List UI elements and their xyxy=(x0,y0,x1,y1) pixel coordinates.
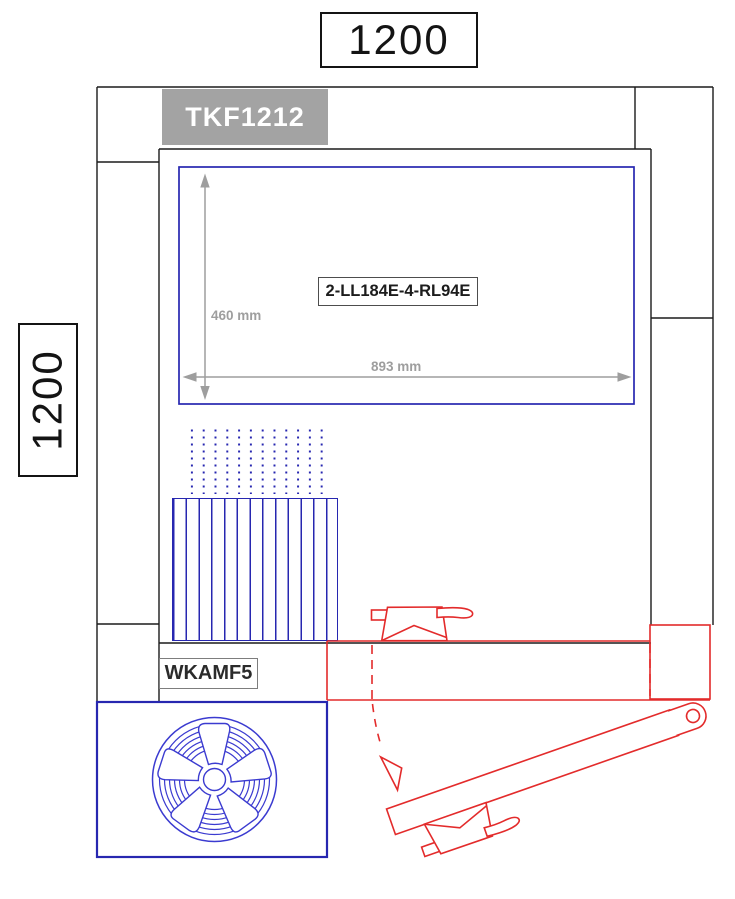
heater-model-box: 2-LL184E-4-RL94E xyxy=(318,277,478,306)
top-dimension-label: 1200 xyxy=(348,16,449,64)
axial-fan-icon xyxy=(153,718,277,842)
left-dimension-label: 1200 xyxy=(24,349,72,450)
ventilation-unit-drawing: 1200 1200 TKF1212 2-LL184E-4-RL94E WKAMF… xyxy=(0,0,735,899)
damper-blade-open-icon xyxy=(387,699,721,866)
top-dimension-box: 1200 xyxy=(320,12,478,68)
filter-model-label: WKAMF5 xyxy=(165,662,253,685)
opening-width-label: 893 mm xyxy=(371,359,421,374)
opening-height-label: 460 mm xyxy=(211,308,261,323)
unit-model-label: TKF1212 xyxy=(185,102,305,133)
drawing-canvas xyxy=(0,0,735,899)
fan-hub xyxy=(204,769,226,791)
left-dimension-box: 1200 xyxy=(18,323,78,477)
damper-actuator-closed-icon xyxy=(372,607,473,641)
heater-model-label: 2-LL184E-4-RL94E xyxy=(326,282,471,301)
vertical-dimension-arrow xyxy=(200,174,209,401)
unit-model-panel: TKF1212 xyxy=(162,89,328,145)
filter-model-box: WKAMF5 xyxy=(159,658,258,689)
damper-flange-box xyxy=(650,625,710,699)
swing-direction-arrow-icon xyxy=(373,704,402,790)
